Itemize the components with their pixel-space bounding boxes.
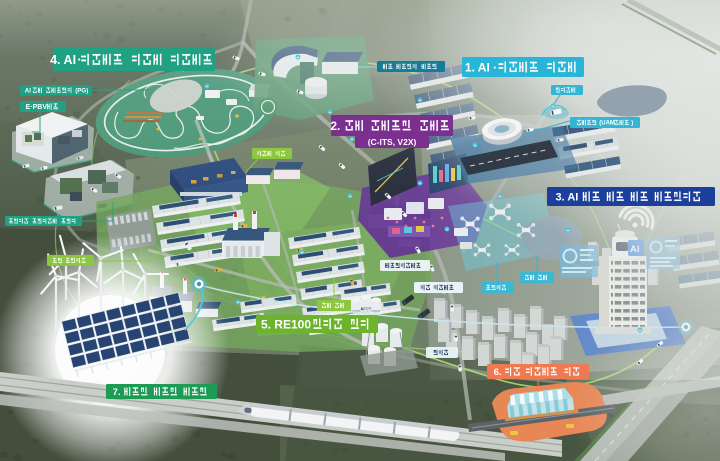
svg-text:E·PBV: E·PBV [26,104,48,111]
svg-text:·: · [77,53,81,67]
svg-text:7.: 7. [113,387,121,398]
svg-text:AI: AI [25,87,31,94]
svg-text:(UAM: (UAM [599,121,615,127]
svg-text:5. RE100: 5. RE100 [261,317,311,331]
svg-text:3. AI: 3. AI [556,191,579,203]
svg-text:): ) [631,121,633,127]
svg-text:(C-ITS, V2X): (C-ITS, V2X) [368,137,417,147]
svg-text:2.: 2. [330,119,340,133]
svg-text:4. AI: 4. AI [50,53,76,67]
svg-text:6.: 6. [494,367,502,378]
svg-text:(PG): (PG) [75,87,88,94]
svg-text:1. AI ·: 1. AI · [465,60,497,74]
